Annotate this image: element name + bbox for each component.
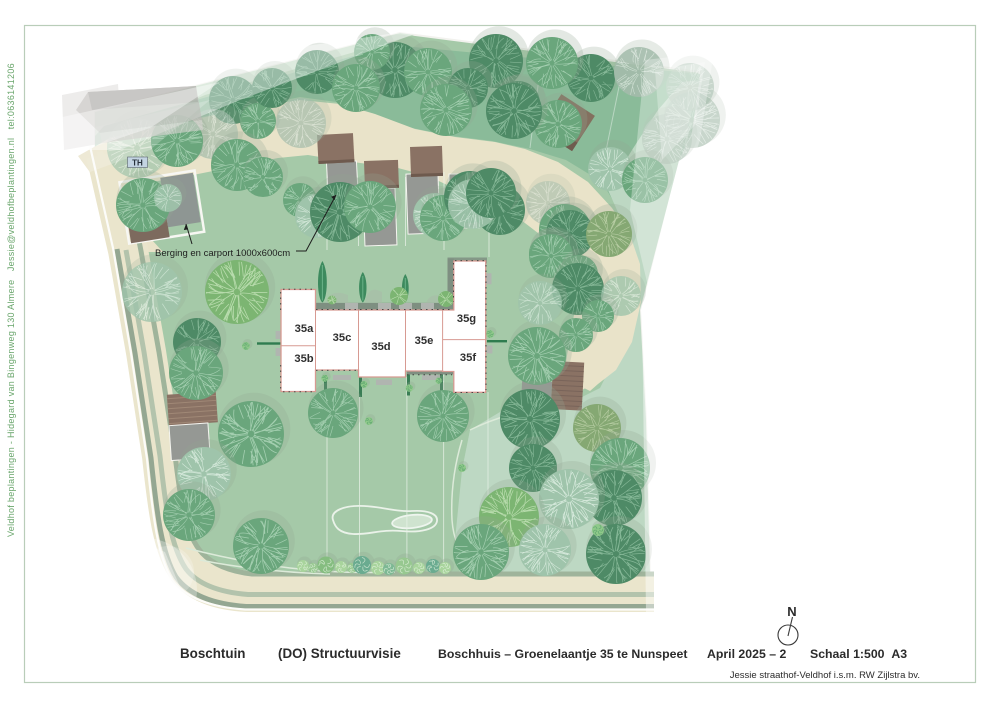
svg-text:April 2025 – 2: April 2025 – 2 (707, 647, 786, 661)
svg-text:35e: 35e (415, 335, 434, 347)
svg-text:35a: 35a (295, 323, 314, 335)
svg-text:Veldhof beplantingen - Hidegar: Veldhof beplantingen - Hidegard van Bing… (6, 63, 16, 537)
svg-text:35d: 35d (371, 341, 390, 353)
svg-text:(DO) Structuurvisie: (DO) Structuurvisie (278, 646, 401, 661)
svg-text:Jessie straathof-Veldhof i.s.m: Jessie straathof-Veldhof i.s.m. RW Zijls… (730, 670, 920, 681)
svg-text:N: N (787, 604, 796, 619)
svg-text:35f: 35f (460, 352, 476, 364)
svg-text:Schaal 1:500 A3: Schaal 1:500 A3 (810, 647, 907, 661)
svg-text:Berging en carport 1000x600cm: Berging en carport 1000x600cm (155, 248, 290, 259)
svg-text:35b: 35b (294, 353, 313, 365)
svg-text:35c: 35c (333, 332, 352, 344)
svg-text:Boschtuin: Boschtuin (180, 646, 245, 661)
svg-text:Boschhuis – Groenelaantje 35 t: Boschhuis – Groenelaantje 35 te Nunspeet (438, 647, 687, 661)
svg-text:35g: 35g (457, 313, 476, 325)
svg-text:TH: TH (132, 159, 143, 168)
